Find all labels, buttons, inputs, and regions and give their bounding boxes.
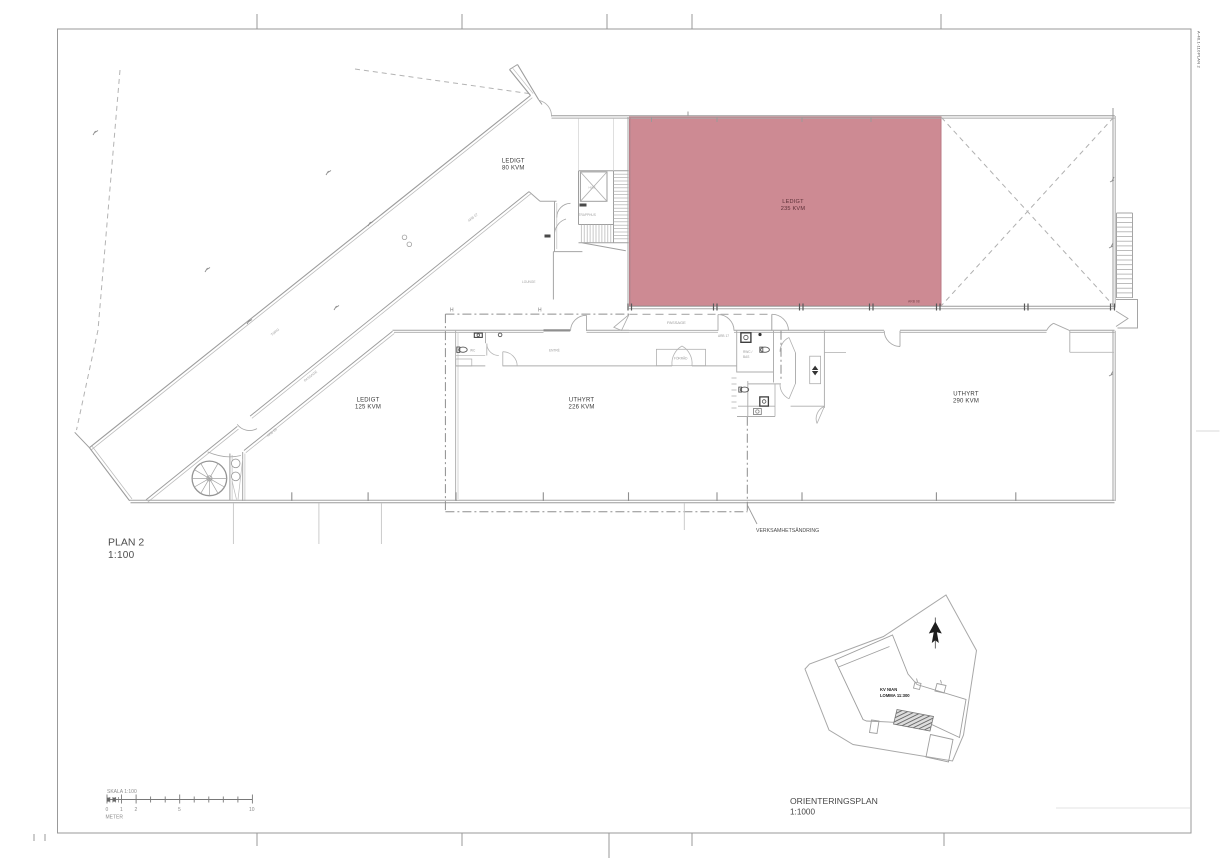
svg-text:ARB 17: ARB 17	[718, 334, 729, 338]
svg-text:A-40.1-110: A-40.1-110	[1197, 31, 1202, 53]
svg-text:VERKSAMHETSÄNDRING: VERKSAMHETSÄNDRING	[756, 527, 819, 534]
svg-text:ARB 08: ARB 08	[908, 300, 920, 304]
svg-text:LOUNGE: LOUNGE	[522, 280, 535, 284]
svg-text:1: 1	[120, 807, 123, 813]
svg-text:290 KVM: 290 KVM	[953, 399, 979, 405]
svg-text:1:100: 1:100	[108, 550, 135, 561]
svg-text:LEDIGT: LEDIGT	[502, 158, 525, 164]
svg-text:PLAN 2: PLAN 2	[1197, 53, 1202, 69]
svg-text:2: 2	[135, 807, 138, 813]
svg-text:LEDIGT: LEDIGT	[357, 398, 380, 404]
svg-text:WC: WC	[470, 349, 476, 353]
svg-text:ARB 07: ARB 07	[467, 212, 479, 222]
svg-text:SKALA 1:100: SKALA 1:100	[107, 789, 137, 795]
svg-text:FÖRRÅD: FÖRRÅD	[674, 356, 688, 361]
svg-text:H: H	[538, 308, 542, 314]
svg-text:LOMMA 11:300: LOMMA 11:300	[880, 693, 910, 698]
svg-text:226 KVM: 226 KVM	[569, 404, 595, 410]
svg-text:0: 0	[106, 807, 109, 813]
svg-text:H: H	[450, 308, 454, 314]
svg-text:ORIENTERINGSPLAN: ORIENTERINGSPLAN	[790, 796, 878, 806]
svg-text:PASSAGE: PASSAGE	[667, 320, 686, 325]
svg-text:UTHYRT: UTHYRT	[953, 392, 979, 398]
svg-text:TRAPPHUS: TRAPPHUS	[579, 213, 596, 217]
svg-text:ARB 05: ARB 05	[266, 427, 278, 437]
svg-text:1:1000: 1:1000	[790, 808, 815, 817]
svg-text:METER: METER	[106, 815, 124, 821]
svg-text:125 KVM: 125 KVM	[355, 404, 381, 410]
svg-text:TORG: TORG	[270, 327, 280, 336]
svg-text:LEDIGT: LEDIGT	[782, 199, 804, 205]
svg-text:KV NIAN: KV NIAN	[880, 687, 897, 692]
svg-text:UTHYRT: UTHYRT	[569, 397, 595, 403]
svg-text:235 KVM: 235 KVM	[781, 206, 806, 212]
svg-text:RWC /: RWC /	[743, 350, 752, 354]
svg-text:BAS: BAS	[743, 355, 749, 359]
svg-text:5: 5	[178, 807, 181, 813]
svg-text:10: 10	[249, 807, 255, 813]
svg-text:PLAN 2: PLAN 2	[108, 537, 144, 549]
svg-text:80 KVM: 80 KVM	[502, 165, 525, 171]
svg-text:HISS: HISS	[588, 186, 595, 190]
svg-text:ENTRÉ: ENTRÉ	[549, 348, 560, 353]
